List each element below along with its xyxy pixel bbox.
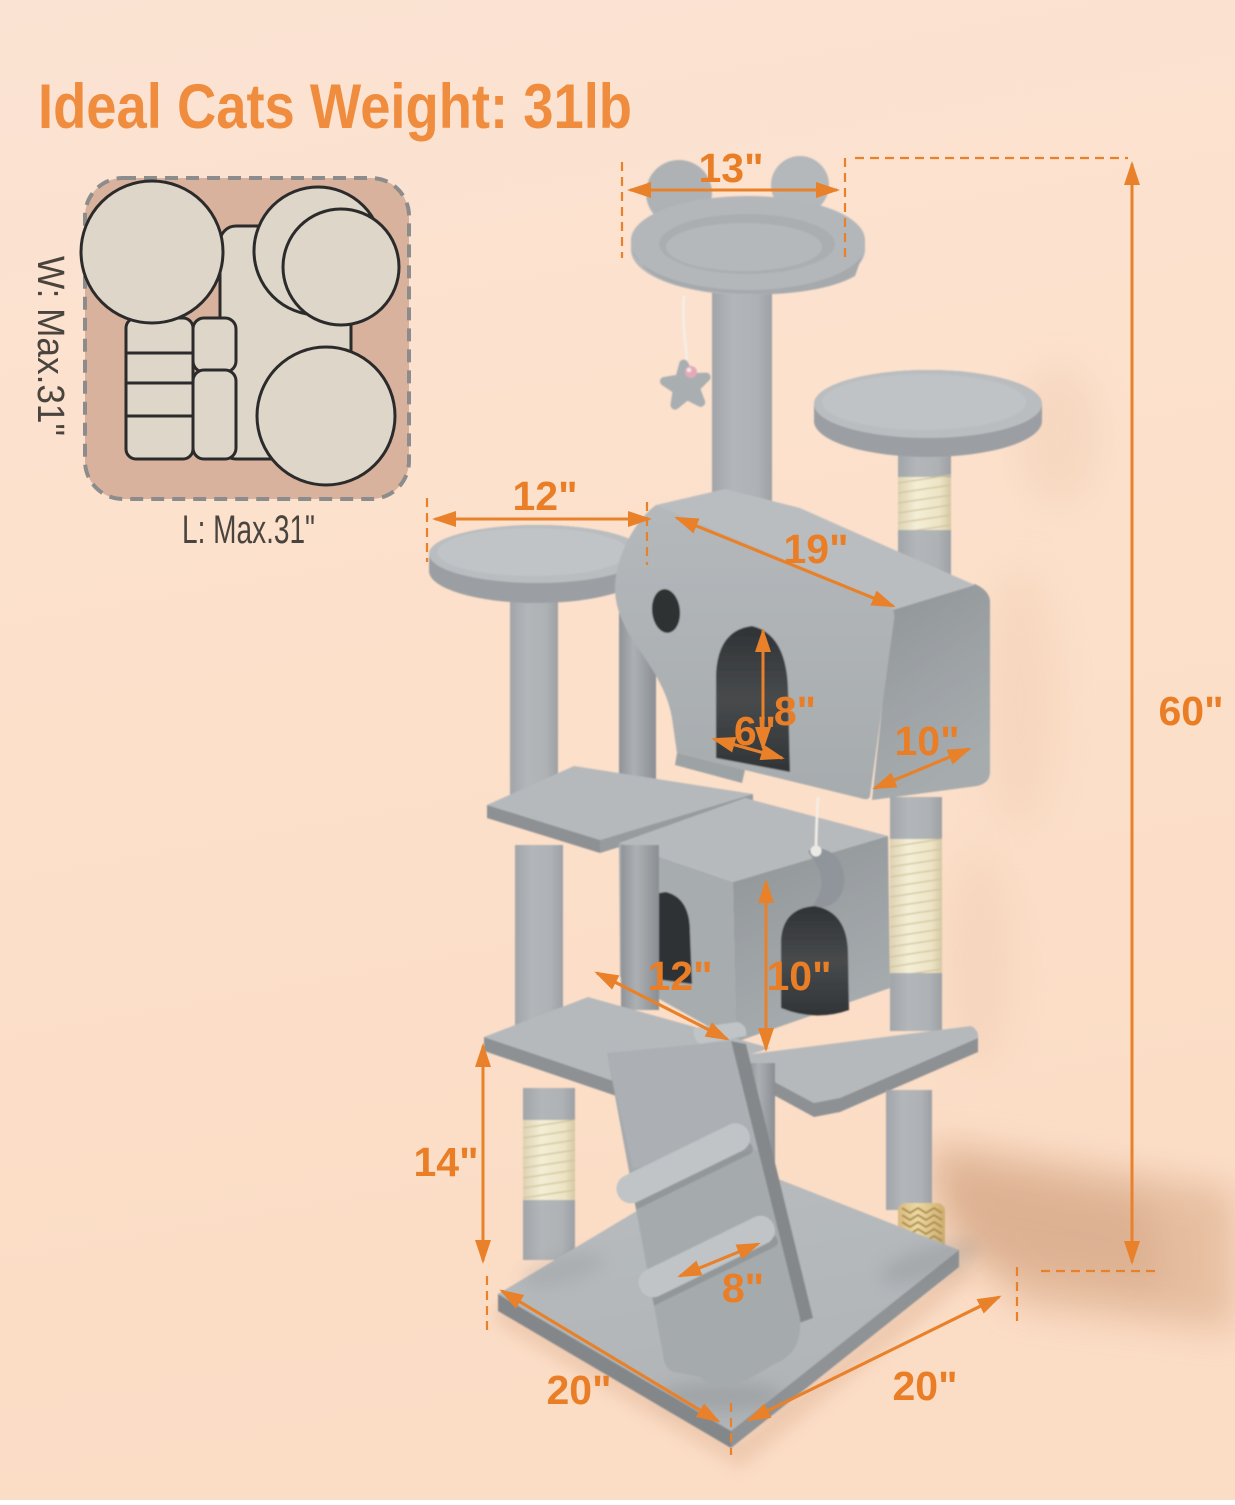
svg-text:14": 14" [413, 1139, 478, 1185]
svg-text:Ideal Cats Weight: 31lb: Ideal Cats Weight: 31lb [38, 72, 632, 142]
svg-text:60": 60" [1158, 688, 1223, 734]
svg-text:20": 20" [546, 1367, 611, 1413]
svg-text:L: Max.31": L: Max.31" [182, 508, 315, 552]
svg-text:6": 6" [734, 708, 776, 754]
svg-text:19": 19" [783, 526, 848, 572]
svg-text:12": 12" [647, 953, 712, 999]
svg-text:10": 10" [766, 953, 831, 999]
svg-text:10": 10" [894, 718, 959, 764]
svg-text:8": 8" [774, 688, 816, 734]
svg-text:W: Max.31": W: Max.31" [29, 256, 71, 436]
svg-text:13": 13" [698, 145, 763, 191]
svg-text:12": 12" [512, 473, 577, 519]
svg-text:20": 20" [892, 1363, 957, 1409]
svg-text:8": 8" [722, 1265, 764, 1311]
